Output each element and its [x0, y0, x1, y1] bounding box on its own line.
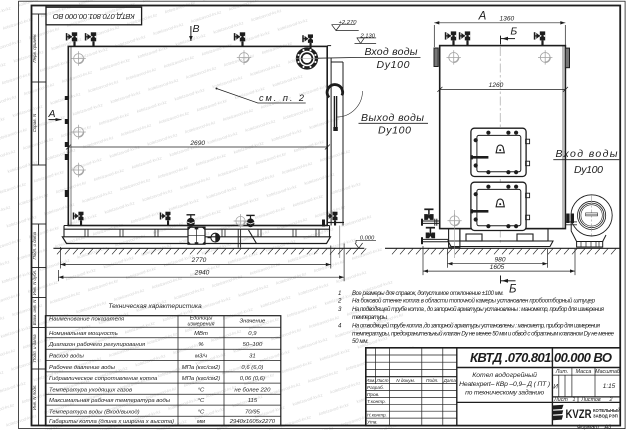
svg-text:Номинальная мощность: Номинальная мощность	[49, 331, 118, 337]
svg-text:1605: 1605	[490, 264, 505, 271]
svg-text:Формат: Формат	[577, 424, 599, 430]
svg-text:2770: 2770	[191, 257, 207, 264]
svg-text:На отводящей трубе котла ,до з: На отводящей трубе котла ,до запорной ар…	[352, 323, 601, 330]
svg-text:1: 1	[338, 290, 341, 297]
svg-text:Б: Б	[510, 26, 517, 38]
svg-text:%: %	[198, 342, 203, 348]
svg-text:КОТЕЛЬНЫЙ: КОТЕЛЬНЫЙ	[593, 408, 620, 413]
svg-text:0,06 (0,6): 0,06 (0,6)	[240, 376, 265, 382]
svg-text:Масштаб: Масштаб	[595, 369, 621, 375]
svg-text:температуры.: температуры.	[352, 314, 388, 321]
svg-text:не более 220: не более 220	[234, 387, 271, 393]
svg-text:Изм.: Изм.	[366, 378, 376, 383]
svg-text:Масса: Масса	[576, 369, 592, 375]
svg-text:115: 115	[248, 398, 258, 404]
svg-text:Температура уходящих газов: Температура уходящих газов	[49, 387, 132, 393]
svg-text:Н.контр.: Н.контр.	[367, 413, 387, 418]
svg-text:1360: 1360	[500, 15, 515, 22]
svg-text:980: 980	[494, 256, 505, 263]
svg-text:Т.контр.: Т.контр.	[367, 399, 386, 404]
svg-text:Лист: Лист	[553, 397, 568, 403]
svg-text:Dy100: Dy100	[574, 164, 603, 176]
svg-text:1260: 1260	[489, 82, 504, 89]
svg-text:Расход воды: Расход воды	[49, 353, 85, 359]
svg-text:2: 2	[337, 298, 342, 305]
svg-text:Максимальная рабочая температу: Максимальная рабочая температура воды	[49, 398, 171, 404]
svg-text:Подп.: Подп.	[426, 378, 438, 383]
svg-text:МВт: МВт	[194, 331, 208, 337]
svg-text:Вход воды: Вход воды	[365, 46, 418, 58]
svg-text:Б: Б	[509, 284, 517, 296]
svg-text:1:15: 1:15	[603, 383, 616, 390]
svg-text:°С: °С	[198, 409, 205, 415]
svg-text:Справ. N: Справ. N	[32, 113, 37, 132]
svg-text:Разраб.: Разраб.	[367, 385, 384, 390]
svg-text:0,9: 0,9	[248, 331, 257, 337]
svg-text:0,6 (6,0): 0,6 (6,0)	[241, 365, 263, 371]
svg-text:1: 1	[573, 397, 576, 403]
svg-text:2690: 2690	[189, 140, 205, 147]
svg-text:температуры, предохранительный: температуры, предохранительный клапан Dy…	[352, 331, 615, 338]
svg-text:Значение: Значение	[239, 319, 266, 325]
svg-text:Техническая характеристика: Техническая характеристика	[108, 303, 202, 310]
svg-text:А: А	[47, 108, 55, 120]
svg-text:2940: 2940	[194, 270, 210, 277]
svg-text:А3: А3	[604, 424, 613, 430]
svg-text:И: И	[553, 384, 558, 391]
svg-text:°С: °С	[198, 398, 205, 404]
svg-text:На боковой стенке котла в обла: На боковой стенке котла в области топочн…	[352, 298, 596, 305]
svg-text:Рабочее давление воды: Рабочее давление воды	[49, 365, 116, 371]
svg-text:Диапазон рабочего регулировани: Диапазон рабочего регулирования	[48, 342, 146, 348]
svg-text:+2.270: +2.270	[339, 20, 358, 26]
svg-text:2.130: 2.130	[359, 33, 375, 39]
svg-text:А: А	[478, 11, 487, 23]
svg-text:ЗАВОД РЭП: ЗАВОД РЭП	[593, 414, 618, 419]
svg-text:Dy100: Dy100	[377, 59, 410, 71]
svg-text:Габариты котла (длина х ширина: Габариты котла (длина х ширина х высота)	[49, 419, 174, 425]
svg-text:Инв. N подл.: Инв. N подл.	[32, 384, 37, 410]
svg-text:Наименование показателя: Наименование показателя	[49, 317, 125, 323]
svg-text:В: В	[192, 23, 199, 35]
svg-text:КВТД.070.801.00.000 ВО: КВТД.070.801.00.000 ВО	[53, 12, 135, 21]
svg-text:измерения: измерения	[188, 322, 215, 328]
svg-text:Все размеры для справок, допус: Все размеры для справок, допустимое откл…	[352, 290, 504, 297]
svg-text:м3/ч: м3/ч	[195, 353, 207, 359]
svg-text:Выход воды: Выход воды	[361, 112, 424, 124]
svg-text:N докум.: N докум.	[396, 378, 415, 383]
svg-text:Взам. инв. N: Взам. инв. N	[32, 299, 37, 325]
svg-text:Листов: Листов	[580, 397, 601, 403]
svg-text:Пров.: Пров.	[367, 392, 379, 397]
svg-text:2: 2	[609, 397, 613, 403]
svg-text:Dy100: Dy100	[378, 125, 411, 137]
svg-text:Подп. и дата: Подп. и дата	[32, 334, 37, 362]
svg-text:по техническому заданию: по техническому заданию	[465, 389, 544, 397]
svg-text:Дата: Дата	[443, 378, 457, 383]
svg-text:МПа (кгс/см2): МПа (кгс/см2)	[182, 376, 221, 382]
svg-text:КВТД .070.801.00.000 ВО: КВТД .070.801.00.000 ВО	[470, 350, 612, 365]
svg-text:Единицы: Единицы	[190, 315, 213, 321]
svg-text:70/95: 70/95	[245, 409, 260, 415]
svg-text:KVZR: KVZR	[566, 407, 592, 421]
svg-text:мм: мм	[197, 419, 205, 425]
svg-text:Лит.: Лит.	[555, 369, 568, 375]
svg-text:°С: °С	[198, 387, 205, 393]
svg-text:Heatexpert– КВр –0,9– Д ( ПТ ): Heatexpert– КВр –0,9– Д ( ПТ )	[459, 381, 550, 388]
svg-text:МПа (кгс/см2): МПа (кгс/см2)	[182, 365, 221, 371]
svg-text:Котел водогрейный: Котел водогрейный	[472, 371, 537, 379]
svg-text:Инв. N дубл.: Инв. N дубл.	[32, 270, 37, 295]
svg-text:2940х1605х2270: 2940х1605х2270	[229, 419, 276, 425]
svg-text:31: 31	[249, 353, 256, 359]
svg-text:Подп. и дата: Подп. и дата	[32, 231, 37, 259]
svg-text:Температура воды (Вход/выход): Температура воды (Вход/выход)	[49, 409, 140, 415]
svg-text:Лист: Лист	[375, 378, 388, 383]
svg-text:50–100: 50–100	[243, 342, 263, 348]
svg-text:Гидравлическое сопротивление к: Гидравлическое сопротивление котла	[49, 376, 158, 382]
svg-text:На подводящей трубе котла , д: На подводящей трубе котла , до запорной …	[352, 306, 605, 313]
svg-text:50 мм.: 50 мм.	[352, 338, 369, 345]
svg-text:Перв. примен.: Перв. примен.	[32, 33, 37, 62]
svg-text:Утв.: Утв.	[367, 419, 378, 424]
